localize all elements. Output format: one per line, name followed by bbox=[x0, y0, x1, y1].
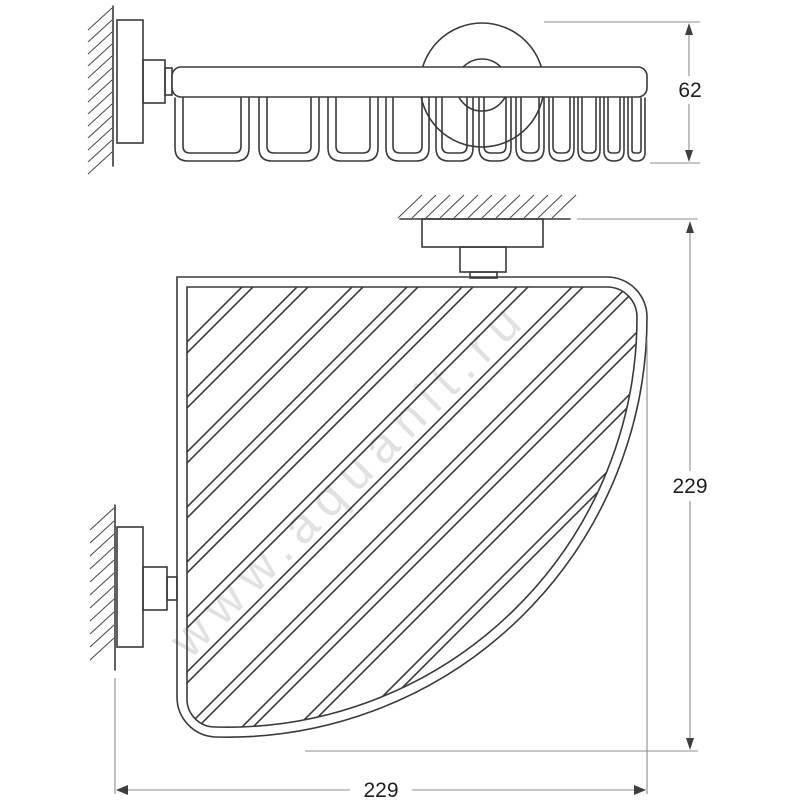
width-dimension-label: 229 bbox=[363, 779, 398, 800]
wall-plate-side bbox=[117, 20, 143, 143]
mount-neck-side bbox=[165, 68, 172, 95]
basket-outline-inner bbox=[187, 287, 637, 727]
basket-wire-loops bbox=[175, 98, 645, 161]
mount-bracket-plan-left bbox=[143, 567, 167, 610]
depth-dimension-label: 229 bbox=[672, 475, 707, 498]
basket-rim-side bbox=[172, 67, 647, 97]
wall-plate-plan-top bbox=[422, 219, 543, 247]
wall-hatching-side bbox=[88, 8, 112, 174]
corner-basket-drawing: www.aquanit.ru 62 bbox=[0, 0, 800, 800]
technical-drawing-page: www.aquanit.ru 62 bbox=[0, 0, 800, 800]
height-dimension-label: 62 bbox=[678, 79, 701, 102]
watermark-text: www.aquanit.ru bbox=[157, 287, 538, 668]
plan-view: 229 229 bbox=[90, 170, 800, 800]
wall-hatching-plan-top bbox=[398, 195, 576, 218]
wall-hatching-plan-left bbox=[90, 508, 114, 660]
wall-plate-plan-left bbox=[117, 527, 143, 647]
mount-neck-plan-left bbox=[167, 577, 177, 600]
mount-bracket-side bbox=[143, 60, 165, 103]
side-view: 62 bbox=[88, 6, 702, 174]
mount-bracket-plan-top bbox=[460, 247, 506, 272]
basket-outline-outer bbox=[177, 277, 647, 737]
